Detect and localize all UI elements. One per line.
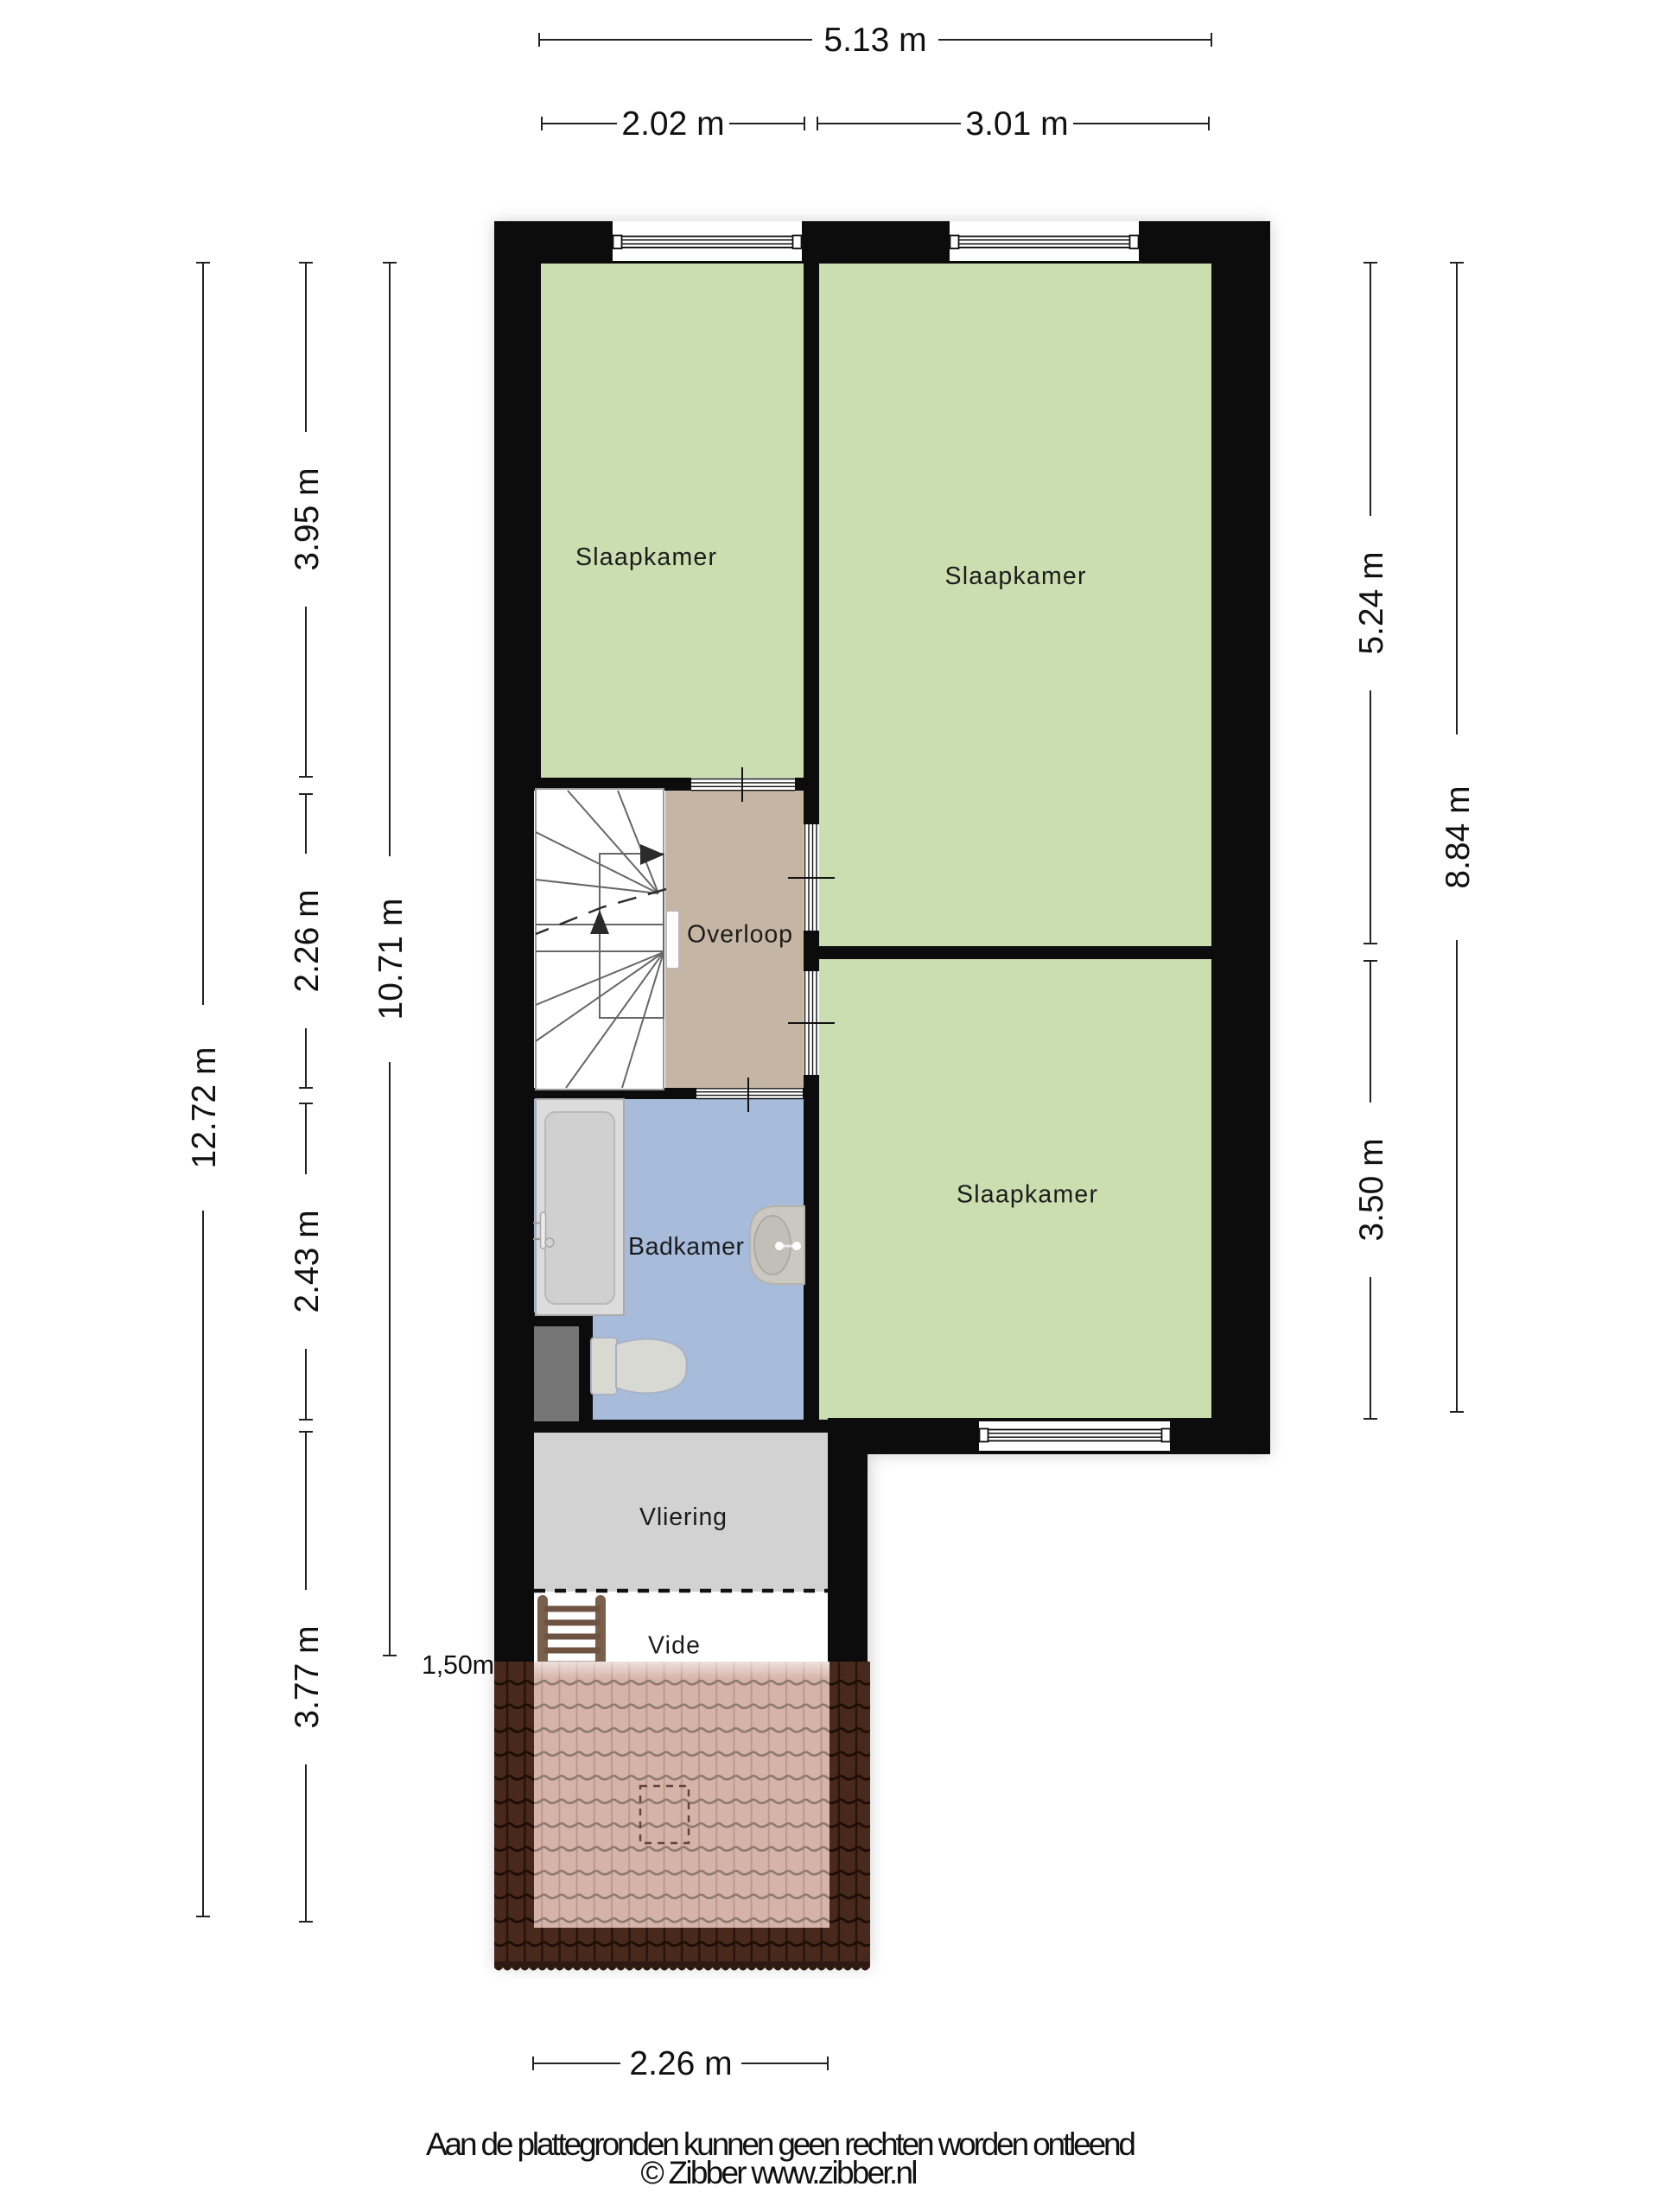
svg-text:Slaapkamer: Slaapkamer <box>575 543 717 571</box>
svg-text:8.84 m: 8.84 m <box>1440 785 1477 888</box>
svg-text:2.26 m: 2.26 m <box>289 889 326 992</box>
svg-text:Slaapkamer: Slaapkamer <box>957 1181 1098 1209</box>
svg-text:© Zibber www.zibber.nl: © Zibber www.zibber.nl <box>641 2155 918 2190</box>
svg-text:3.95 m: 3.95 m <box>289 467 326 570</box>
svg-text:5.24 m: 5.24 m <box>1353 551 1390 654</box>
svg-text:3.77 m: 3.77 m <box>289 1625 326 1728</box>
svg-text:2.02 m: 2.02 m <box>621 105 724 143</box>
svg-text:12.72 m: 12.72 m <box>186 1047 223 1169</box>
svg-text:Overloop: Overloop <box>687 921 792 949</box>
svg-text:2.26 m: 2.26 m <box>629 2045 732 2082</box>
svg-text:3.50 m: 3.50 m <box>1353 1138 1390 1241</box>
svg-text:Vliering: Vliering <box>639 1503 727 1531</box>
svg-text:Slaapkamer: Slaapkamer <box>945 563 1087 590</box>
svg-text:3.01 m: 3.01 m <box>965 105 1068 143</box>
svg-text:1,50m: 1,50m <box>422 1650 494 1680</box>
svg-text:Vide: Vide <box>648 1632 700 1660</box>
svg-text:10.71 m: 10.71 m <box>372 899 410 1020</box>
svg-text:Badkamer: Badkamer <box>628 1233 745 1261</box>
svg-text:2.43 m: 2.43 m <box>289 1210 326 1313</box>
svg-text:5.13 m: 5.13 m <box>823 22 926 59</box>
